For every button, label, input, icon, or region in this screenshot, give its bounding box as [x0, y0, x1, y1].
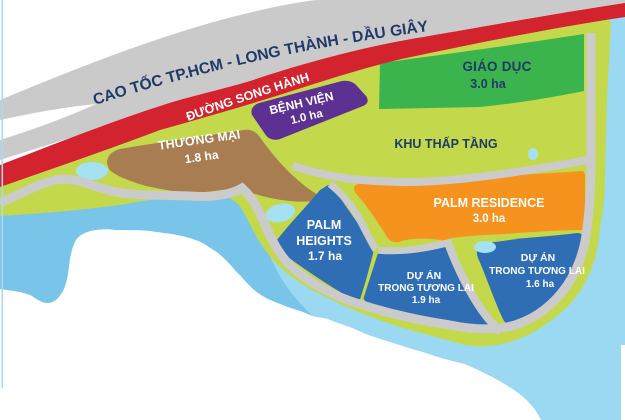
svg-text:PALM RESIDENCE: PALM RESIDENCE — [434, 196, 545, 210]
svg-text:1.7 ha: 1.7 ha — [308, 249, 342, 263]
svg-text:PALM: PALM — [307, 218, 342, 232]
svg-text:DỰ ÁN: DỰ ÁN — [407, 269, 441, 282]
svg-text:3.0 ha: 3.0 ha — [473, 213, 506, 225]
svg-text:HEIGHTS: HEIGHTS — [296, 234, 352, 248]
svg-text:1.6 ha: 1.6 ha — [526, 279, 555, 290]
svg-text:TRONG TƯƠNG LAI: TRONG TƯƠNG LAI — [378, 283, 474, 294]
svg-text:1.9 ha: 1.9 ha — [412, 295, 441, 306]
svg-text:3.0 ha: 3.0 ha — [470, 77, 506, 91]
svg-text:DỰ ÁN: DỰ ÁN — [521, 251, 555, 264]
svg-text:GIÁO DỤC: GIÁO DỤC — [462, 59, 531, 74]
svg-text:TRONG TƯƠNG LAI: TRONG TƯƠNG LAI — [489, 266, 585, 277]
svg-text:KHU THẤP TẦNG: KHU THẤP TẦNG — [394, 136, 497, 151]
